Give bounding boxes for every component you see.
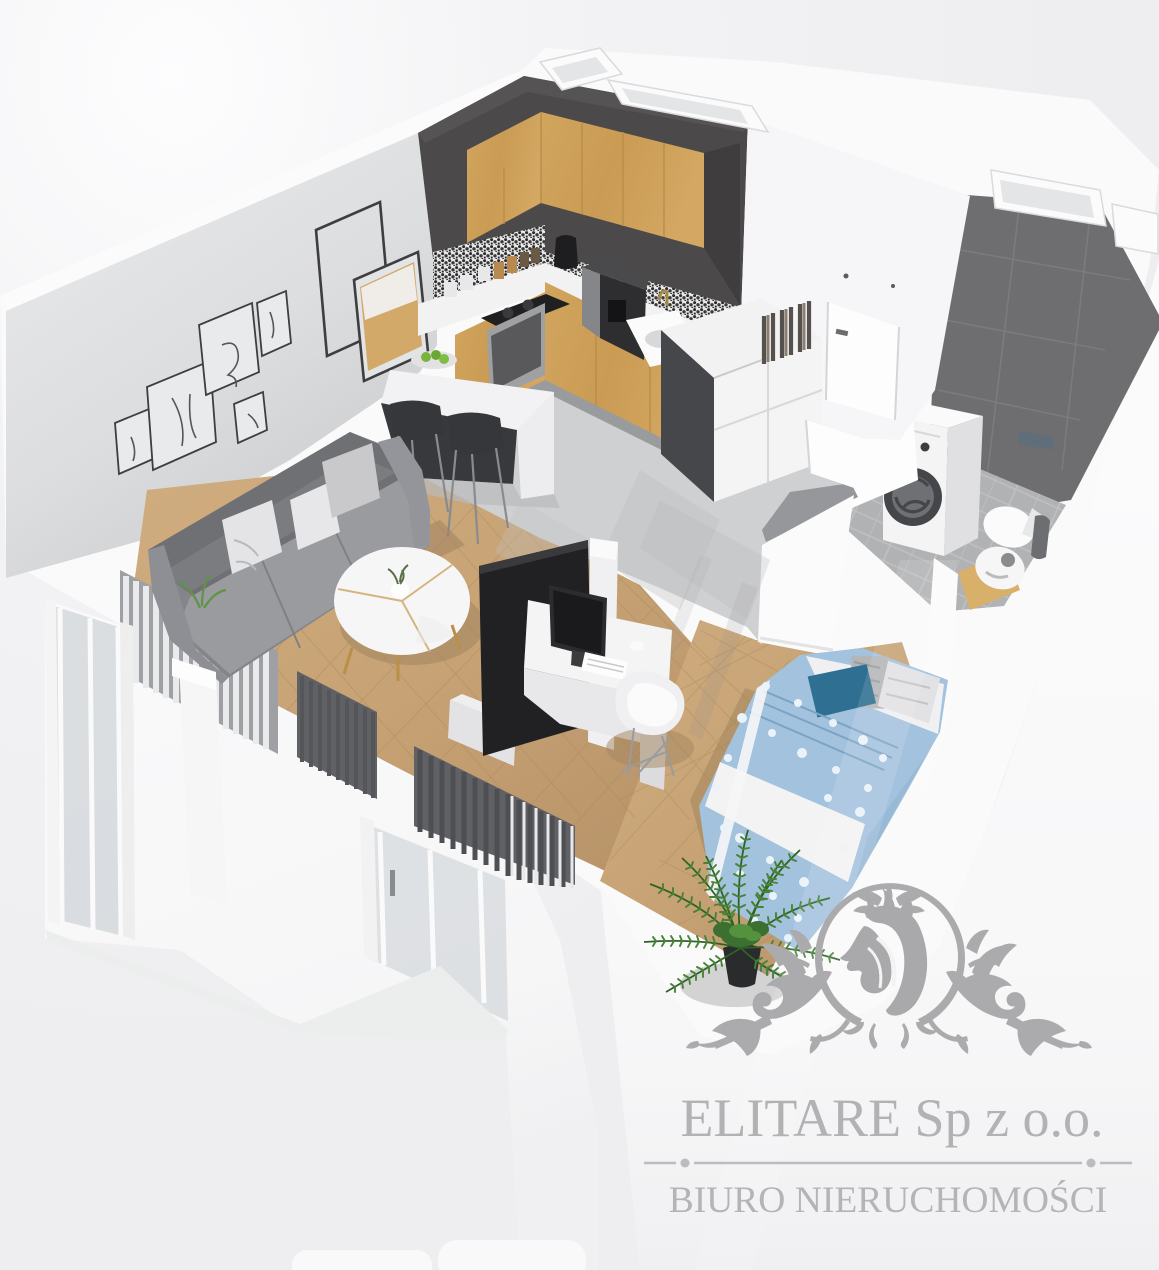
svg-text:ELITARE Sp z o.o.: ELITARE Sp z o.o.: [680, 1088, 1103, 1148]
svg-text:BIURO NIERUCHOMOŚCI: BIURO NIERUCHOMOŚCI: [669, 1179, 1108, 1221]
